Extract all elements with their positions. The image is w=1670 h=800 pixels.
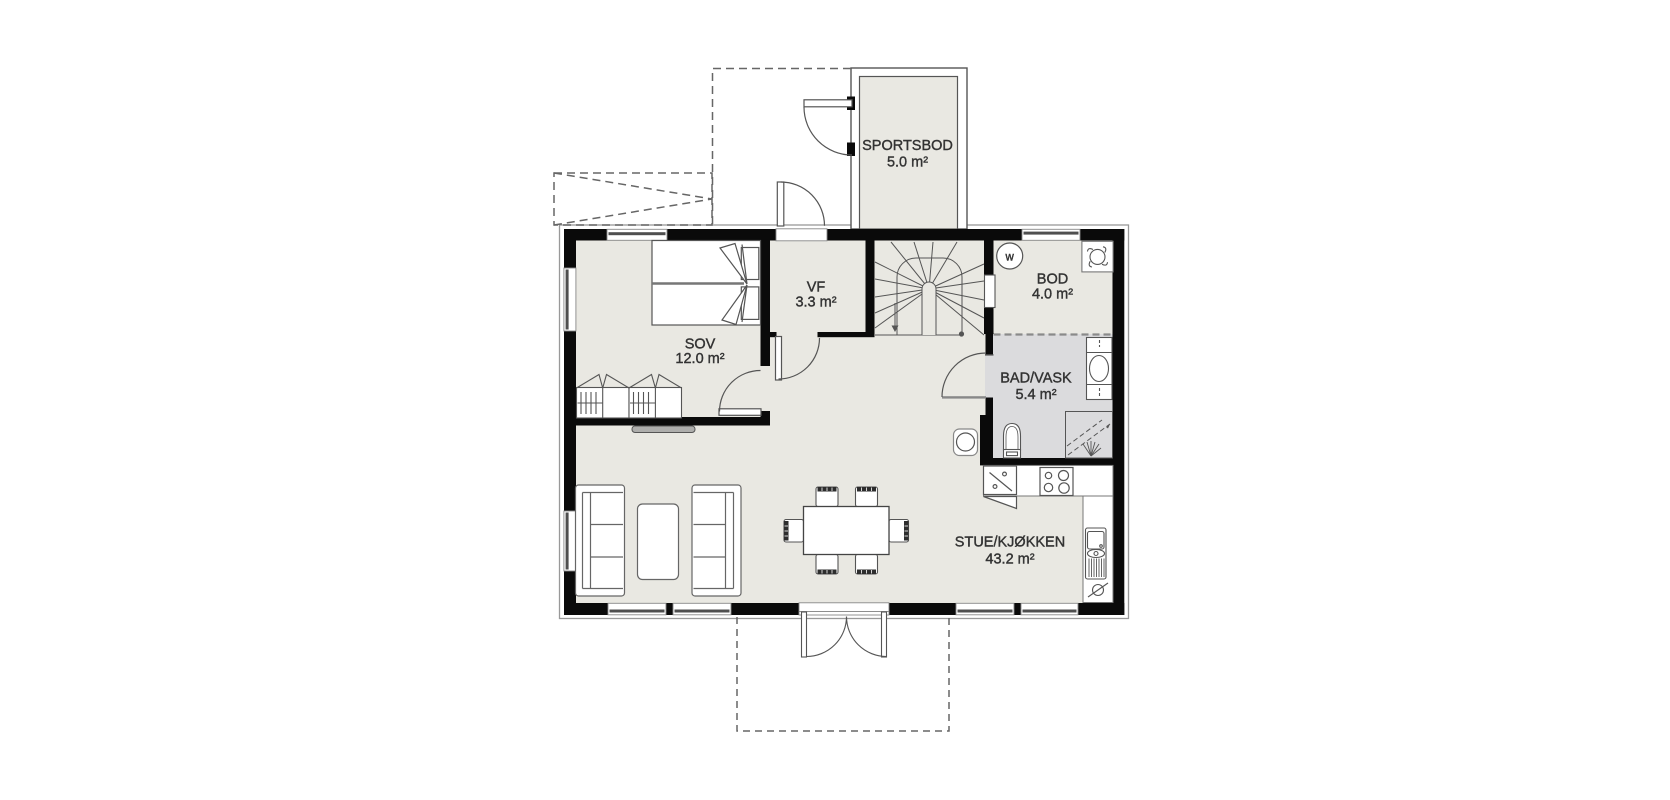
svg-text:STUE/KJØKKEN: STUE/KJØKKEN: [955, 535, 1065, 551]
svg-text:BAD/VASK: BAD/VASK: [1000, 371, 1072, 387]
svg-text:4.0 m²: 4.0 m²: [1032, 287, 1073, 303]
svg-text:SPORTSBOD: SPORTSBOD: [862, 138, 953, 154]
svg-text:5.0 m²: 5.0 m²: [887, 155, 928, 171]
svg-text:VF: VF: [807, 280, 826, 296]
svg-text:5.4 m²: 5.4 m²: [1015, 387, 1056, 403]
svg-text:3.3 m²: 3.3 m²: [795, 295, 836, 311]
svg-text:43.2 m²: 43.2 m²: [985, 552, 1034, 568]
svg-text:BOD: BOD: [1037, 272, 1068, 288]
svg-text:12.0 m²: 12.0 m²: [675, 351, 724, 367]
svg-text:w: w: [1005, 252, 1015, 264]
